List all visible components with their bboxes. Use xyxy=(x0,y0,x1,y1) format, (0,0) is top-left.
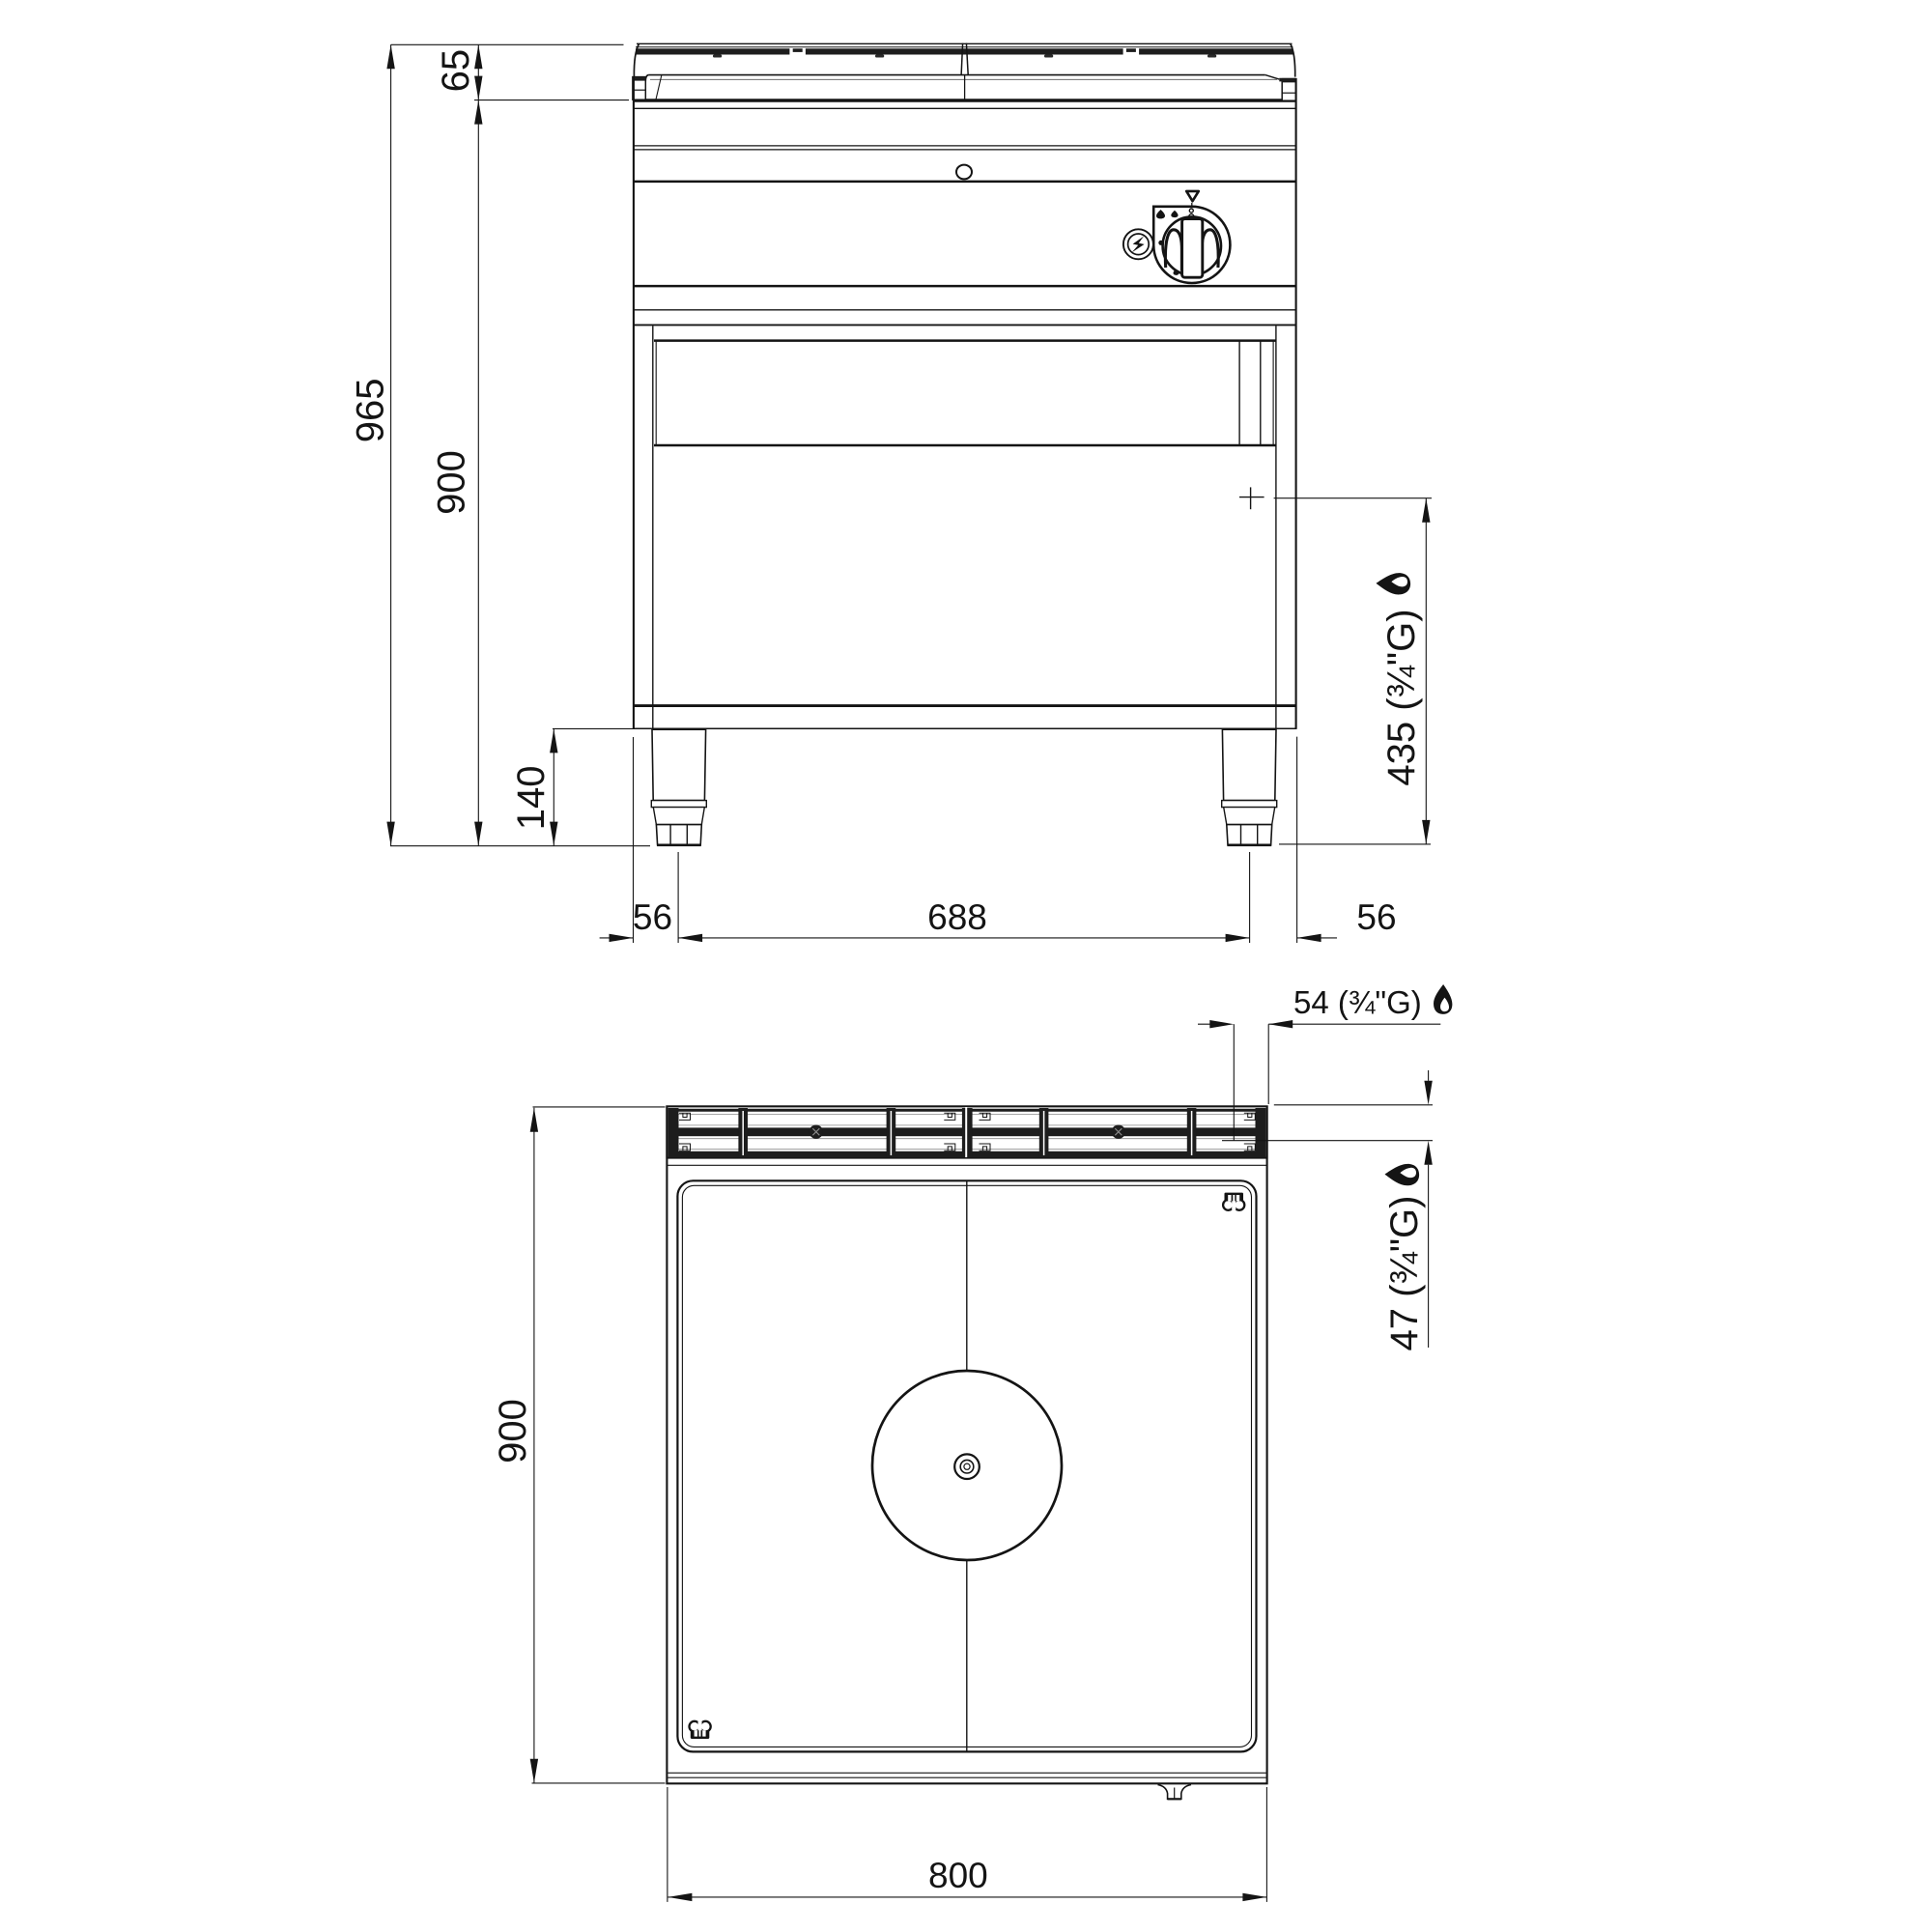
svg-text:54 (¾"G): 54 (¾"G) xyxy=(1293,984,1422,1020)
svg-text:140: 140 xyxy=(510,765,553,830)
svg-text:900: 900 xyxy=(492,1399,534,1463)
svg-text:900: 900 xyxy=(430,450,472,515)
svg-text:688: 688 xyxy=(927,897,987,937)
svg-text:47 (¾"G): 47 (¾"G) xyxy=(1383,1196,1426,1351)
svg-text:435 (¾"G): 435 (¾"G) xyxy=(1380,609,1423,785)
svg-text:56: 56 xyxy=(1356,897,1396,937)
svg-text:800: 800 xyxy=(928,1856,988,1895)
svg-text:56: 56 xyxy=(633,897,672,937)
svg-text:965: 965 xyxy=(350,379,392,443)
svg-text:65: 65 xyxy=(435,49,477,93)
